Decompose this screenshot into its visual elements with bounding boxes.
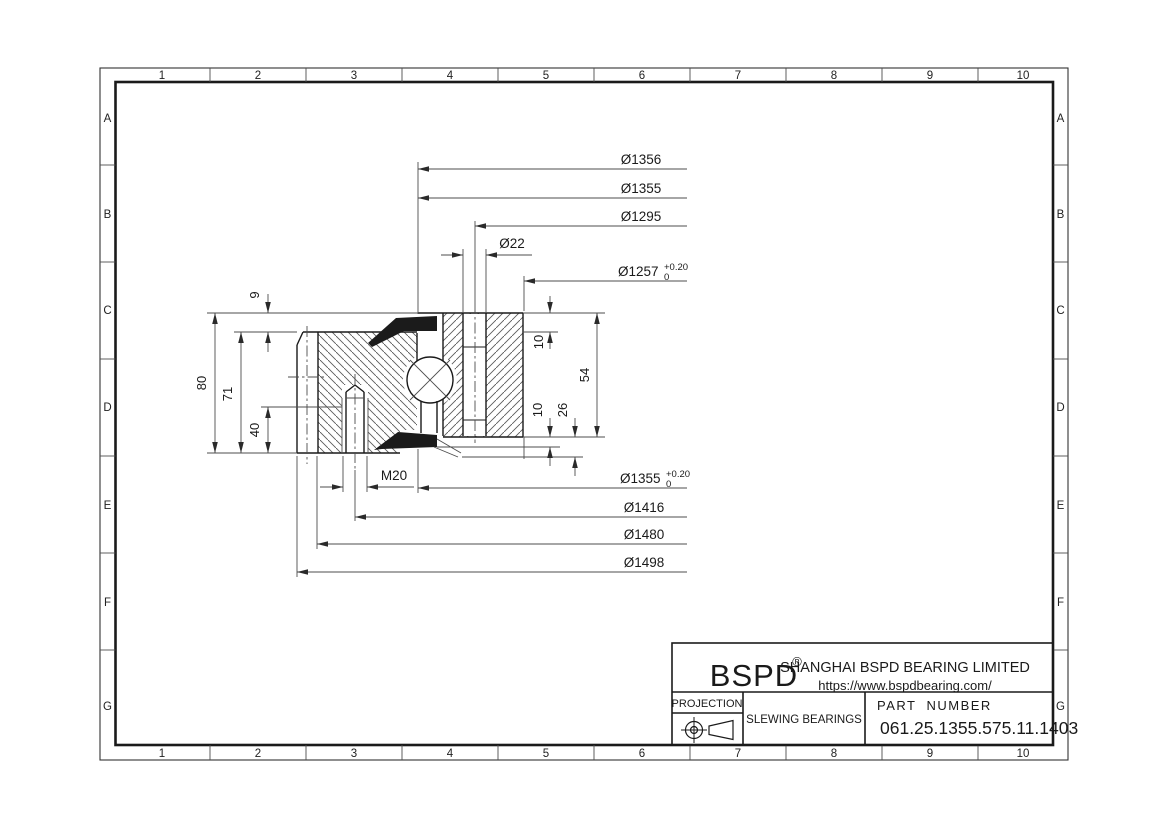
dim-od1416-label: Ø1416 — [624, 500, 665, 515]
dim-80-label: 80 — [194, 376, 209, 390]
grid-row-label: G — [1056, 701, 1065, 713]
dim-54-label: 54 — [577, 368, 592, 382]
dim-od1257-label: Ø1257 — [618, 264, 659, 279]
grid-column-label: 7 — [735, 70, 741, 82]
page-background — [0, 0, 1170, 827]
projection-label: PROJECTION — [672, 698, 743, 710]
dim-m20-label: M20 — [381, 468, 407, 483]
dim-od1355b-label: Ø1355 — [620, 471, 661, 486]
grid-row-label: F — [104, 597, 111, 609]
grid-row-label: C — [103, 305, 111, 317]
grid-column-label: 7 — [735, 748, 741, 760]
grid-column-label: 10 — [1017, 748, 1030, 760]
grid-column-label: 4 — [447, 748, 454, 760]
dim-9-label: 9 — [247, 291, 262, 298]
dim-od1295-label: Ø1295 — [621, 209, 662, 224]
dim-od1356-label: Ø1356 — [621, 152, 662, 167]
grid-row-label: D — [1056, 402, 1064, 414]
company-name: SHANGHAI BSPD BEARING LIMITED — [780, 660, 1030, 676]
grid-row-label: B — [1057, 209, 1065, 221]
dim-od1480-label: Ø1480 — [624, 527, 665, 542]
part-number-value: 061.25.1355.575.11.1403 — [880, 718, 1078, 738]
grid-column-label: 3 — [351, 748, 357, 760]
grid-column-label: 1 — [159, 748, 165, 760]
grid-column-label: 5 — [543, 70, 549, 82]
dim-od22-label: Ø22 — [499, 236, 525, 251]
grid-row-label: E — [1057, 500, 1065, 512]
grid-row-label: A — [104, 113, 112, 125]
dim-od1355b-tolerance-lower: 0 — [666, 479, 671, 490]
grid-row-label: E — [104, 500, 112, 512]
dim-od1498-label: Ø1498 — [624, 555, 665, 570]
grid-row-label: A — [1057, 113, 1065, 125]
dim-26-label: 26 — [555, 403, 570, 417]
dim-od1257-tolerance-lower: 0 — [664, 272, 669, 283]
grid-column-label: 2 — [255, 748, 261, 760]
grid-row-label: G — [103, 701, 112, 713]
dim-71-label: 71 — [220, 387, 235, 401]
dim-40-label: 40 — [247, 423, 262, 437]
grid-column-label: 3 — [351, 70, 357, 82]
grid-column-label: 8 — [831, 70, 837, 82]
grid-column-label: 10 — [1017, 70, 1030, 82]
dim-10-top-label: 10 — [531, 335, 546, 349]
dim-od1355-label: Ø1355 — [621, 181, 662, 196]
drawing-sheet: 1 2 3 4 5 6 7 8 9 10 1 2 3 4 5 6 7 8 9 1… — [0, 0, 1170, 827]
grid-column-label: 4 — [447, 70, 454, 82]
grid-row-label: B — [104, 209, 112, 221]
grid-row-label: D — [103, 402, 111, 414]
grid-column-label: 9 — [927, 70, 933, 82]
grid-row-label: F — [1057, 597, 1064, 609]
grid-column-label: 6 — [639, 70, 645, 82]
grid-column-label: 8 — [831, 748, 837, 760]
grid-column-label: 2 — [255, 70, 261, 82]
grid-row-label: C — [1056, 305, 1064, 317]
website-url: https://www.bspdbearing.com/ — [818, 678, 992, 693]
product-type: SLEWING BEARINGS — [746, 714, 862, 726]
grid-column-label: 5 — [543, 748, 549, 760]
engineering-drawing: 1 2 3 4 5 6 7 8 9 10 1 2 3 4 5 6 7 8 9 1… — [0, 0, 1170, 827]
grid-column-label: 9 — [927, 748, 933, 760]
dim-10-bottom-label: 10 — [530, 403, 545, 417]
grid-column-label: 6 — [639, 748, 645, 760]
part-number-label: PART NUMBER — [877, 698, 992, 713]
grid-column-label: 1 — [159, 70, 165, 82]
